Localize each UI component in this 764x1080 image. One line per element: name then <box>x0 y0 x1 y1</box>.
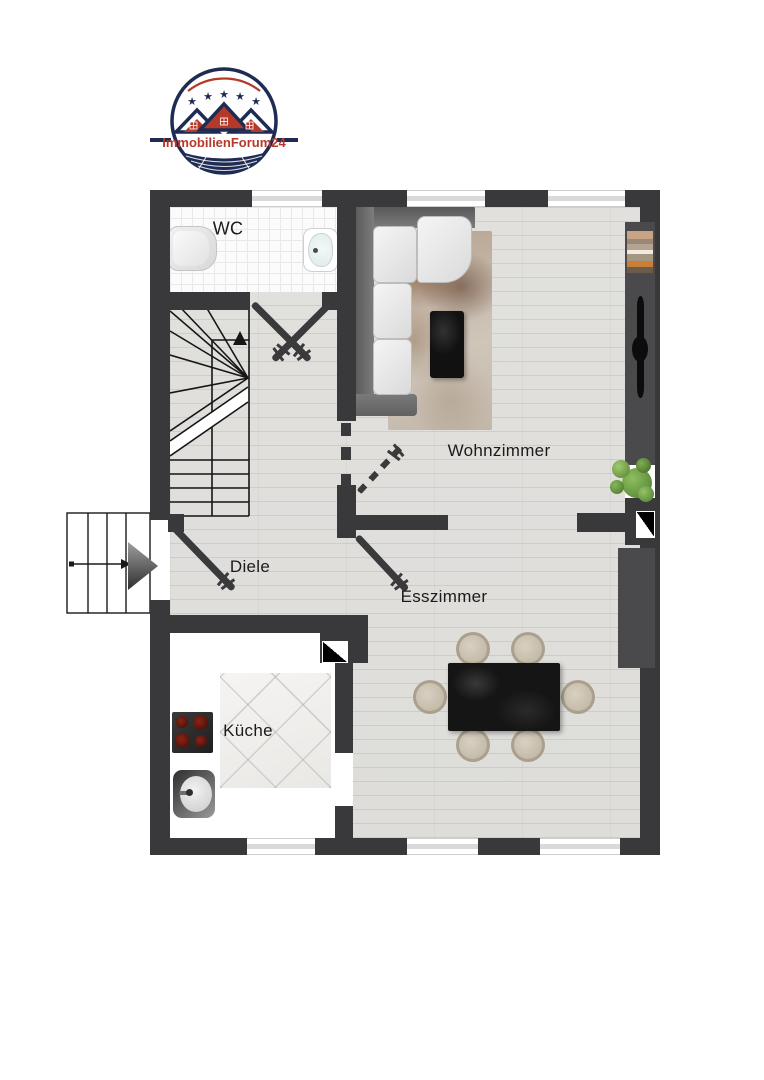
room-label-wohnzimmer: Wohnzimmer <box>448 441 551 461</box>
toilet <box>168 226 217 271</box>
logo-houses <box>176 104 272 132</box>
coffee-table <box>430 311 464 378</box>
wall-kitchen-right <box>335 806 353 838</box>
wall-wc-bottom <box>150 292 250 310</box>
dining-chair <box>413 680 447 714</box>
dining-chair <box>511 728 545 762</box>
wall-bottom <box>315 838 407 855</box>
window <box>252 190 322 207</box>
wall-top <box>485 190 548 207</box>
staircase <box>170 303 250 518</box>
room-label-esszimmer: Esszimmer <box>401 587 488 607</box>
logo-brand-text: ImmobilienForum24 <box>162 135 286 150</box>
sofa-cushion <box>373 339 412 395</box>
chimney-symbol <box>322 641 348 663</box>
window <box>540 838 620 855</box>
wall-kitchen-top <box>150 615 368 633</box>
wall-dining-top <box>356 515 448 530</box>
tv-icon-hub <box>632 336 648 362</box>
dining-chair <box>561 680 595 714</box>
entrance-steps <box>65 511 161 617</box>
sideboard-lower <box>618 548 655 668</box>
room-label-wc: WC <box>213 219 244 240</box>
wall-kitchen-right <box>335 663 353 753</box>
opening-dash <box>341 447 351 460</box>
sofa-back-left <box>353 205 374 416</box>
kitchen-door-threshold <box>335 753 353 806</box>
washbasin <box>303 228 338 272</box>
wall-top <box>322 190 407 207</box>
wall-bottom <box>478 838 540 855</box>
logo-field <box>181 152 267 174</box>
window <box>407 190 485 207</box>
svg-text:★: ★ <box>187 95 197 108</box>
svg-text:★: ★ <box>235 90 245 103</box>
svg-text:★: ★ <box>219 88 229 101</box>
window <box>247 838 315 855</box>
floor-plan-page: ★★★★★ ImmobilienForum24 <box>0 0 764 1080</box>
window <box>407 838 478 855</box>
sofa-cushion <box>417 216 472 283</box>
wall-stub-left <box>337 485 356 538</box>
chimney-symbol <box>636 511 655 538</box>
sofa-armrest <box>353 394 417 416</box>
books-icon <box>627 231 653 273</box>
brand-logo: ★★★★★ ImmobilienForum24 <box>148 64 300 182</box>
svg-text:★: ★ <box>203 90 213 103</box>
wall-left <box>150 190 170 520</box>
dining-chair <box>456 728 490 762</box>
stairs-up-arrow <box>233 331 247 345</box>
dining-chair <box>456 632 490 666</box>
svg-text:★: ★ <box>251 95 261 108</box>
wall-left <box>150 600 170 855</box>
wall-hall-living <box>337 207 356 421</box>
cooktop-icon <box>172 712 213 753</box>
dining-chair <box>511 632 545 666</box>
window <box>548 190 625 207</box>
sofa-cushion <box>373 226 417 283</box>
dining-table <box>448 663 560 731</box>
plant-icon <box>608 458 658 508</box>
sofa-cushion <box>373 283 412 339</box>
opening-dash <box>341 474 351 487</box>
kitchen-sink-icon <box>173 770 215 818</box>
opening-dash <box>341 423 351 436</box>
room-label-kueche: Küche <box>223 721 273 741</box>
room-label-diele: Diele <box>230 557 270 577</box>
